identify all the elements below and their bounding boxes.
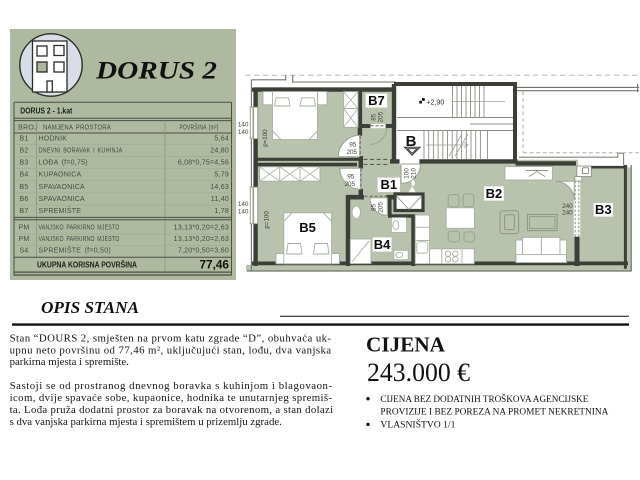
svg-text:SPREMIŠTE (f=0,50): SPREMIŠTE (f=0,50) [39,246,111,255]
svg-text:VLASNIŠTVO 1/1: VLASNIŠTVO 1/1 [380,418,455,430]
svg-text:p=100: p=100 [262,129,269,147]
svg-text:205: 205 [344,181,355,188]
svg-text:NAMJENA PROSTORA: NAMJENA PROSTORA [43,125,111,132]
svg-text:DORUS 2: DORUS 2 [95,56,217,85]
svg-text:140: 140 [238,129,249,136]
svg-text:5,79: 5,79 [214,172,229,179]
svg-text:OPIS STANA: OPIS STANA [41,298,139,317]
svg-text:205: 205 [377,111,384,122]
svg-text:Stan “DOURS 2, smješten na prv: Stan “DOURS 2, smješten na prvom katu zg… [10,333,332,345]
svg-text:100: 100 [403,168,410,179]
svg-text:DORUS 2 - 1.kat: DORUS 2 - 1.kat [20,107,72,116]
svg-text:ta. Lođa pruža dodatni prostor: ta. Lođa pruža dodatni prostor za borava… [10,404,334,416]
svg-text:KUPAONICA: KUPAONICA [39,172,82,179]
svg-text:PM: PM [19,236,30,243]
svg-text:205: 205 [378,202,385,213]
svg-text:B3: B3 [19,160,28,167]
svg-text:Sastoji se od prostranog dnevn: Sastoji se od prostranog dnevnog boravka… [10,380,333,392]
svg-text:13,13*0,20=2,63: 13,13*0,20=2,63 [174,236,229,243]
svg-text:B4: B4 [19,172,28,179]
svg-text:210: 210 [410,168,417,179]
svg-text:B5: B5 [19,184,28,191]
svg-text:13,13*0,20=2,63: 13,13*0,20=2,63 [174,225,229,232]
svg-text:HODNIK: HODNIK [39,135,68,142]
svg-text:11,40: 11,40 [211,196,229,203]
svg-text:B3: B3 [595,202,612,217]
svg-text:140: 140 [238,122,249,129]
svg-text:B2: B2 [486,186,503,201]
svg-text:B4: B4 [374,237,391,252]
svg-text:SPAVAONICA: SPAVAONICA [39,184,86,191]
svg-text:95: 95 [347,173,355,180]
svg-text:VANJSKO PARKIRNO MJESTO: VANJSKO PARKIRNO MJESTO [39,225,120,232]
svg-text:S4: S4 [19,248,28,255]
svg-text:UKUPNA KORISNA POVRŠINA: UKUPNA KORISNA POVRŠINA [37,260,137,269]
svg-text:14,63: 14,63 [210,184,229,191]
svg-text:B2: B2 [19,147,28,154]
svg-text:s dva vanjska parkirna mjesta: s dva vanjska parkirna mjesta i spremišt… [10,416,282,428]
svg-text:6,08*0,75=4,56: 6,08*0,75=4,56 [178,160,229,167]
svg-text:POVRŠINA (m²): POVRŠINA (m²) [180,123,219,132]
svg-text:85: 85 [371,203,378,211]
svg-text:SPREMIŠTE: SPREMIŠTE [39,206,82,215]
svg-text:5,64: 5,64 [214,135,229,142]
svg-text:B1: B1 [380,177,397,192]
svg-text:BROJ: BROJ [18,125,38,132]
svg-text:DNEVNI BORAVAK I KUHINJA: DNEVNI BORAVAK I KUHINJA [39,147,123,154]
svg-text:205: 205 [346,149,357,156]
svg-text:B7: B7 [19,208,28,215]
svg-text:icom, dvije spavaće sobe, kupa: icom, dvije spavaće sobe, kupaonice, hod… [10,392,333,404]
svg-text:95: 95 [349,141,357,148]
svg-text:243.000 €: 243.000 € [367,358,470,387]
svg-text:77,46: 77,46 [199,258,229,272]
svg-text:PROVIZIJE I BEZ POREZA NA PROM: PROVIZIJE I BEZ POREZA NA PROMET NEKRETN… [380,408,608,418]
svg-text:B7: B7 [368,93,385,108]
svg-text:24,80: 24,80 [210,147,229,154]
svg-text:7,20*0,50=3,60: 7,20*0,50=3,60 [178,248,229,255]
svg-text:CIJENA BEZ DODATNIH TROŠKOVA A: CIJENA BEZ DODATNIH TROŠKOVA AGENCIJSKE [380,393,588,405]
svg-text:+2,90: +2,90 [427,100,445,107]
svg-text:parkirna mjesta i spremište.: parkirna mjesta i spremište. [10,356,129,368]
svg-text:LOĐA (f=0,75): LOĐA (f=0,75) [39,160,88,167]
svg-text:p=100: p=100 [264,211,271,229]
svg-text:PM: PM [19,225,30,232]
svg-text:140: 140 [238,208,249,215]
svg-text:140: 140 [238,201,249,208]
svg-text:B5: B5 [299,220,316,235]
svg-text:CIJENA: CIJENA [366,332,445,356]
svg-text:240: 240 [562,209,573,216]
svg-text:VANJSKO PARKIRNO MJESTO: VANJSKO PARKIRNO MJESTO [39,236,120,243]
svg-text:1,78: 1,78 [214,208,229,215]
svg-text:SPAVAONICA: SPAVAONICA [39,196,86,203]
svg-text:upnu neto površinu od 77,46 m²: upnu neto površinu od 77,46 m², uključuj… [10,344,332,356]
svg-text:85: 85 [370,113,377,121]
svg-text:B1: B1 [19,135,28,142]
svg-text:B6: B6 [19,196,28,203]
